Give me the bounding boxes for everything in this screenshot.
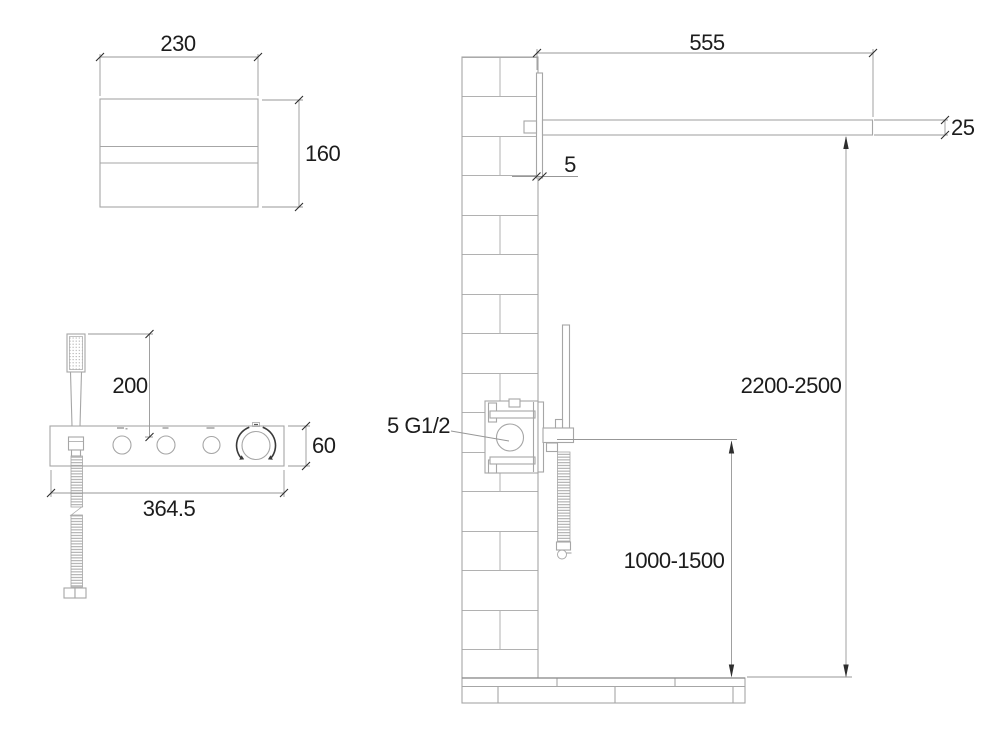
dim-25 — [874, 116, 949, 139]
hose-lower — [71, 515, 83, 587]
dim-label-height-overall: 2200-2500 — [741, 375, 842, 397]
drawing-linework — [0, 0, 1000, 750]
dim-160 — [262, 96, 303, 211]
hose-break — [70, 506, 83, 516]
dim-label-spout-height: 160 — [305, 143, 340, 165]
hose-end-nut — [64, 588, 75, 598]
floor — [462, 678, 745, 703]
dim-555 — [533, 49, 877, 117]
dim-label-spout-length: 555 — [689, 32, 724, 54]
spout-front-slot-lines — [100, 147, 258, 164]
panel-body — [50, 426, 284, 466]
dim-230 — [96, 53, 262, 96]
spout-front-body — [100, 99, 258, 207]
dim-label-spout-thickness: 25 — [951, 117, 974, 139]
dim-label-panel-height: 60 — [312, 435, 335, 457]
dim-364-5 — [47, 470, 288, 497]
handshower-hose-side — [558, 452, 571, 542]
dim-2200-2500 — [747, 136, 852, 678]
dim-label-panel-width: 364.5 — [143, 498, 196, 520]
handshower-handle — [71, 372, 82, 426]
dim-label-handshower-height: 200 — [112, 375, 147, 397]
spout-wall-plate — [537, 73, 543, 178]
handshower-side — [543, 325, 574, 559]
wall — [462, 57, 538, 678]
spout-arm — [543, 120, 873, 135]
handshower-side-handle — [563, 325, 570, 428]
label-connection-size: 5 G1/2 — [387, 415, 450, 437]
spout-front-view — [100, 99, 258, 207]
dim-60 — [288, 422, 310, 470]
handshower-holder — [543, 428, 574, 443]
panel-front-view — [50, 334, 284, 598]
pipe-connection — [524, 121, 537, 133]
hose-upper — [71, 456, 83, 507]
handshower-base — [69, 437, 84, 450]
technical-drawing-page: 230 160 200 364.5 60 555 25 5 5 G1/2 220… — [0, 0, 1000, 750]
dim-label-height-mixer: 1000-1500 — [624, 550, 725, 572]
valve-box — [485, 399, 544, 473]
dim-label-spout-width: 230 — [160, 33, 195, 55]
handshower-sprayface — [70, 337, 83, 370]
dim-label-plate-thickness: 5 — [564, 154, 576, 176]
